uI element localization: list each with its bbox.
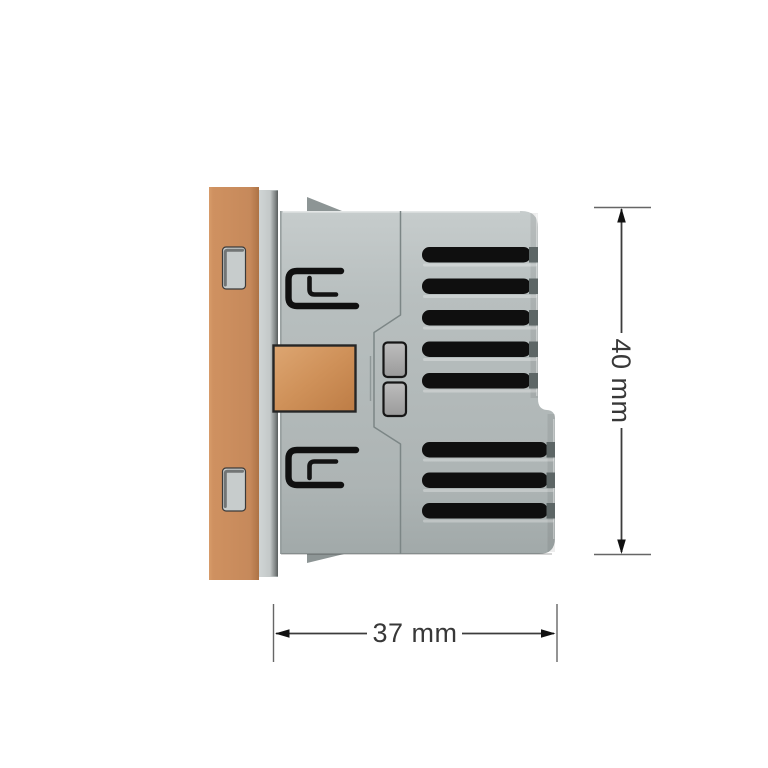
vent-slot [422,279,538,299]
vent-slot [422,342,538,362]
height-dimension-label: 40 mm [606,316,636,446]
vent-slot [422,503,555,523]
copper-terminal [274,346,356,412]
illustration-canvas: 40 mm 37 mm [0,0,768,768]
front-plate [209,187,259,580]
arrow-down-icon [617,540,626,555]
arrow-right-icon [541,629,556,638]
vent-slot [422,247,538,267]
plate-slot-top [223,247,246,289]
arrow-left-icon [275,629,290,638]
top-mount-tab [307,197,342,211]
vent-slot [422,310,538,330]
side-button-1 [384,343,407,378]
plate-slot-bottom [223,468,246,511]
device-illustration [0,0,768,768]
vent-group-bottom [422,442,555,523]
vent-slot [422,473,555,493]
bottom-mount-tab [307,554,344,563]
side-button-2 [384,383,407,417]
width-dimension-label: 37 mm [340,618,490,648]
arrow-up-icon [617,208,626,223]
vent-slot [422,373,538,393]
vent-slot [422,442,555,462]
